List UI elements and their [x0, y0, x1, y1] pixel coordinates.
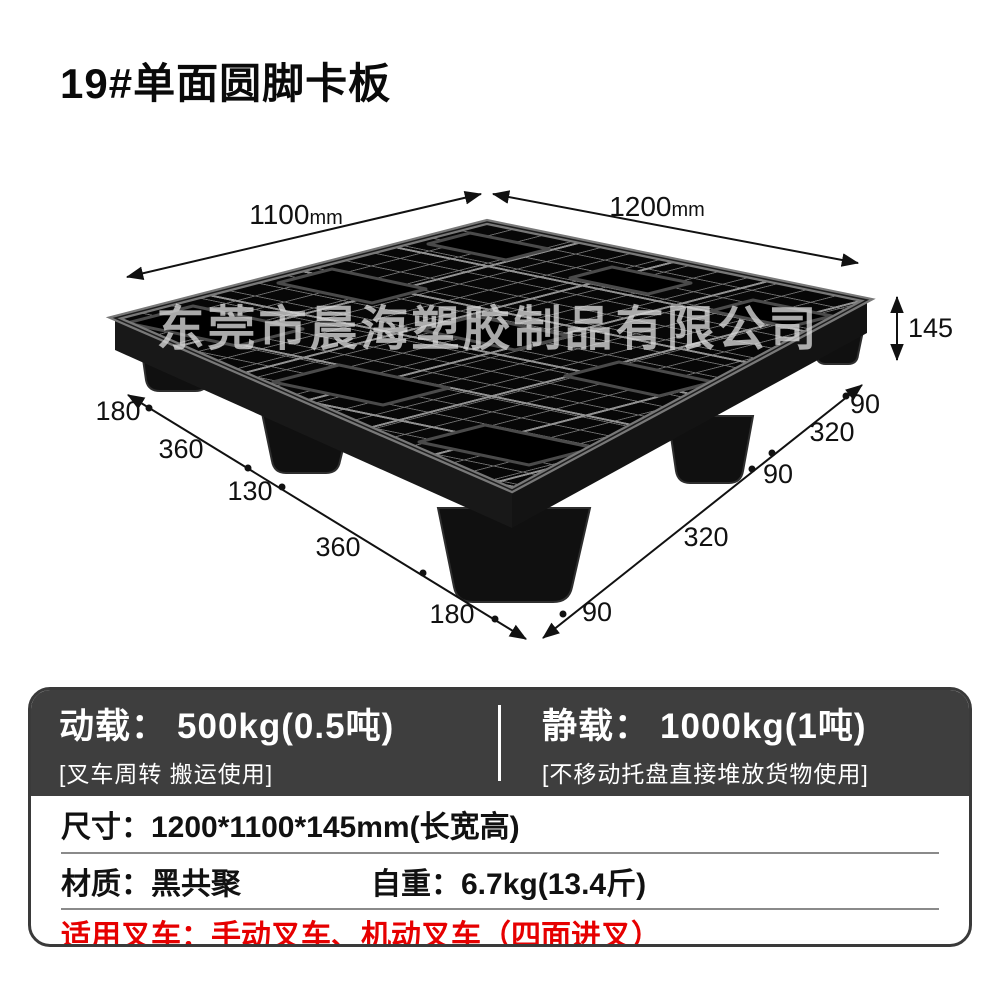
static-load-value: 静载：1000kg(1吨)	[542, 698, 969, 749]
dim-label-right-90b: 90	[763, 459, 793, 489]
dim-label-right-320a: 320	[683, 522, 728, 552]
static-load-note: [不移动托盘直接堆放货物使用]	[542, 755, 969, 789]
size-label: 尺寸：	[61, 802, 151, 846]
size-row: 尺寸：1200*1100*145mm(长宽高)	[31, 796, 969, 852]
dynamic-load-note: [叉车周转 搬运使用]	[59, 755, 500, 789]
header-divider	[498, 705, 501, 781]
dynamic-load-cell: 动载：500kg(0.5吨) [叉车周转 搬运使用]	[31, 690, 500, 796]
dim-label-right-320b: 320	[809, 417, 854, 447]
watermark-text: 东莞市晨海塑胶制品有限公司	[156, 303, 819, 356]
dim-label-right-90c: 90	[850, 389, 880, 419]
dim-label-145: 145	[908, 313, 953, 343]
forklift-label: 适用叉车：	[61, 911, 211, 947]
product-image-page: 19#单面圆脚卡板	[0, 0, 1000, 1000]
size-value: 1200*1100*145mm(长宽高)	[151, 802, 520, 846]
weight-value: 6.7kg(13.4斤)	[461, 868, 646, 901]
dim-label-1100mm: 1100mm	[249, 199, 343, 230]
dynamic-load-value: 动载：500kg(0.5吨)	[59, 698, 500, 749]
forklift-row: 适用叉车：手动叉车、机动叉车（四面进叉）	[31, 910, 969, 947]
spec-panel: 动载：500kg(0.5吨) [叉车周转 搬运使用] 静载：1000kg(1吨)…	[28, 687, 972, 947]
dim-label-1200mm: 1200mm	[609, 191, 705, 222]
dim-label-left-130: 130	[227, 476, 272, 506]
static-load-label: 静载：	[542, 707, 650, 746]
dim-label-left-360a: 360	[158, 434, 203, 464]
material-value: 黑共聚	[151, 868, 241, 901]
dim-label-left-180a: 180	[95, 396, 140, 426]
material-label: 材质：	[61, 868, 151, 901]
load-header: 动载：500kg(0.5吨) [叉车周转 搬运使用] 静载：1000kg(1吨)…	[31, 690, 969, 796]
material-row: 材质：黑共聚 自重：6.7kg(13.4斤)	[31, 854, 969, 908]
static-load-cell: 静载：1000kg(1吨) [不移动托盘直接堆放货物使用]	[500, 690, 969, 796]
dynamic-load-label: 动载：	[59, 707, 167, 746]
dim-label-right-90a: 90	[582, 597, 612, 627]
material-group: 材质：黑共聚	[61, 859, 371, 903]
forklift-value: 手动叉车、机动叉车（四面进叉）	[211, 911, 661, 947]
dim-label-left-360b: 360	[315, 532, 360, 562]
pallet-photo: 东莞市晨海塑胶制品有限公司	[80, 180, 900, 602]
weight-label: 自重：	[371, 868, 461, 901]
weight-group: 自重：6.7kg(13.4斤)	[371, 859, 646, 903]
dim-label-left-180b: 180	[429, 599, 474, 629]
